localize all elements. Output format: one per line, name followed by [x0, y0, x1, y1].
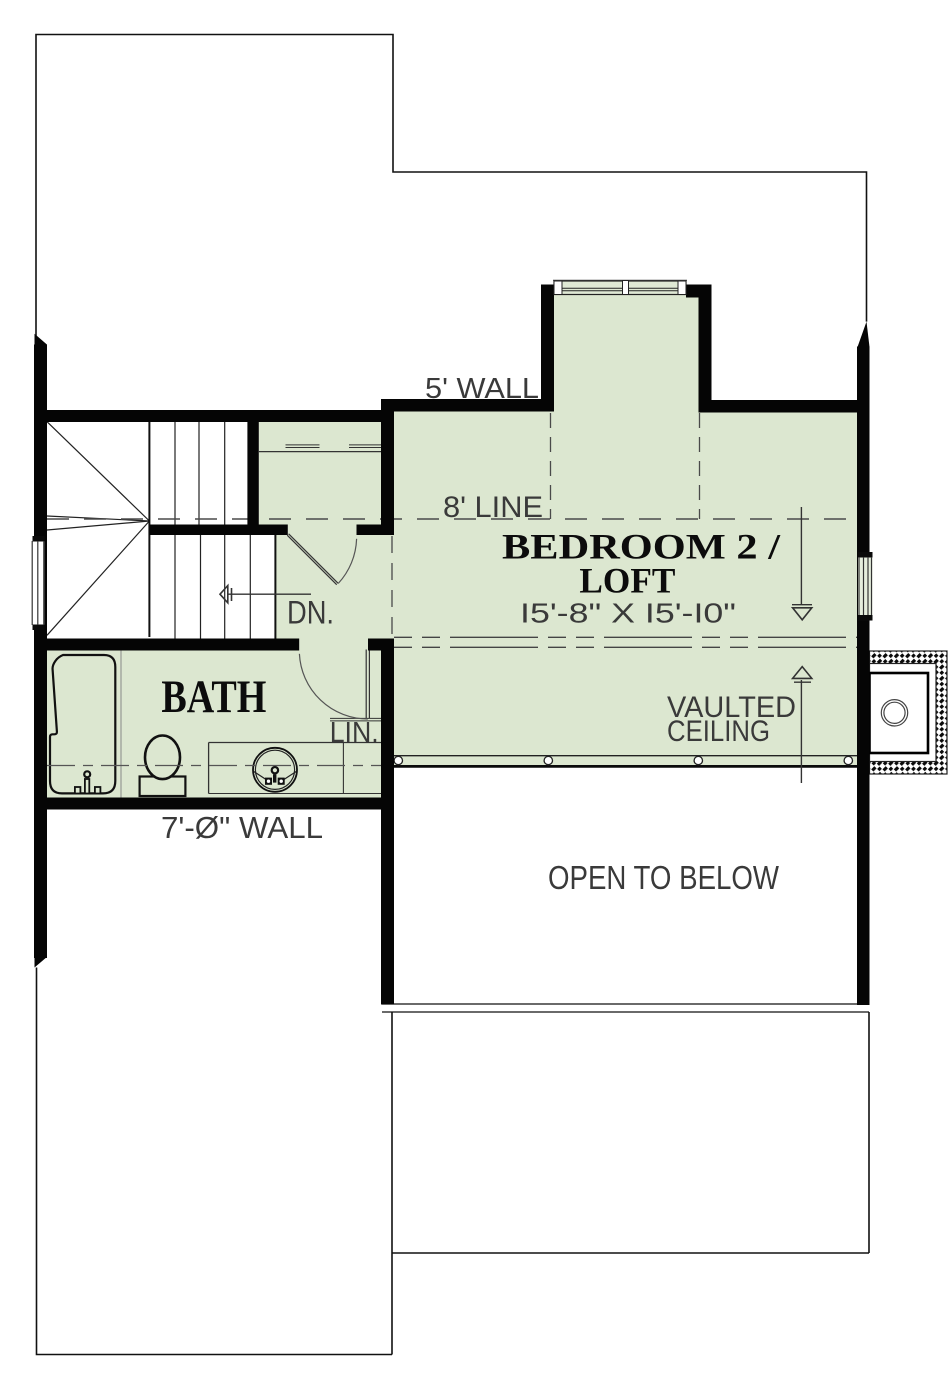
- svg-text:5' WALL: 5' WALL: [425, 373, 539, 405]
- svg-text:OPEN TO BELOW: OPEN TO BELOW: [548, 859, 780, 896]
- svg-text:BATH: BATH: [161, 672, 266, 723]
- svg-text:8' LINE: 8' LINE: [443, 491, 543, 524]
- svg-text:7'-Ø" WALL: 7'-Ø" WALL: [161, 810, 323, 845]
- svg-text:LOFT: LOFT: [579, 560, 675, 600]
- svg-text:I5'-8" X I5'-I0": I5'-8" X I5'-I0": [520, 598, 736, 629]
- svg-text:LIN.: LIN.: [330, 717, 379, 749]
- svg-text:CEILING: CEILING: [667, 715, 770, 748]
- svg-text:DN.: DN.: [287, 595, 334, 631]
